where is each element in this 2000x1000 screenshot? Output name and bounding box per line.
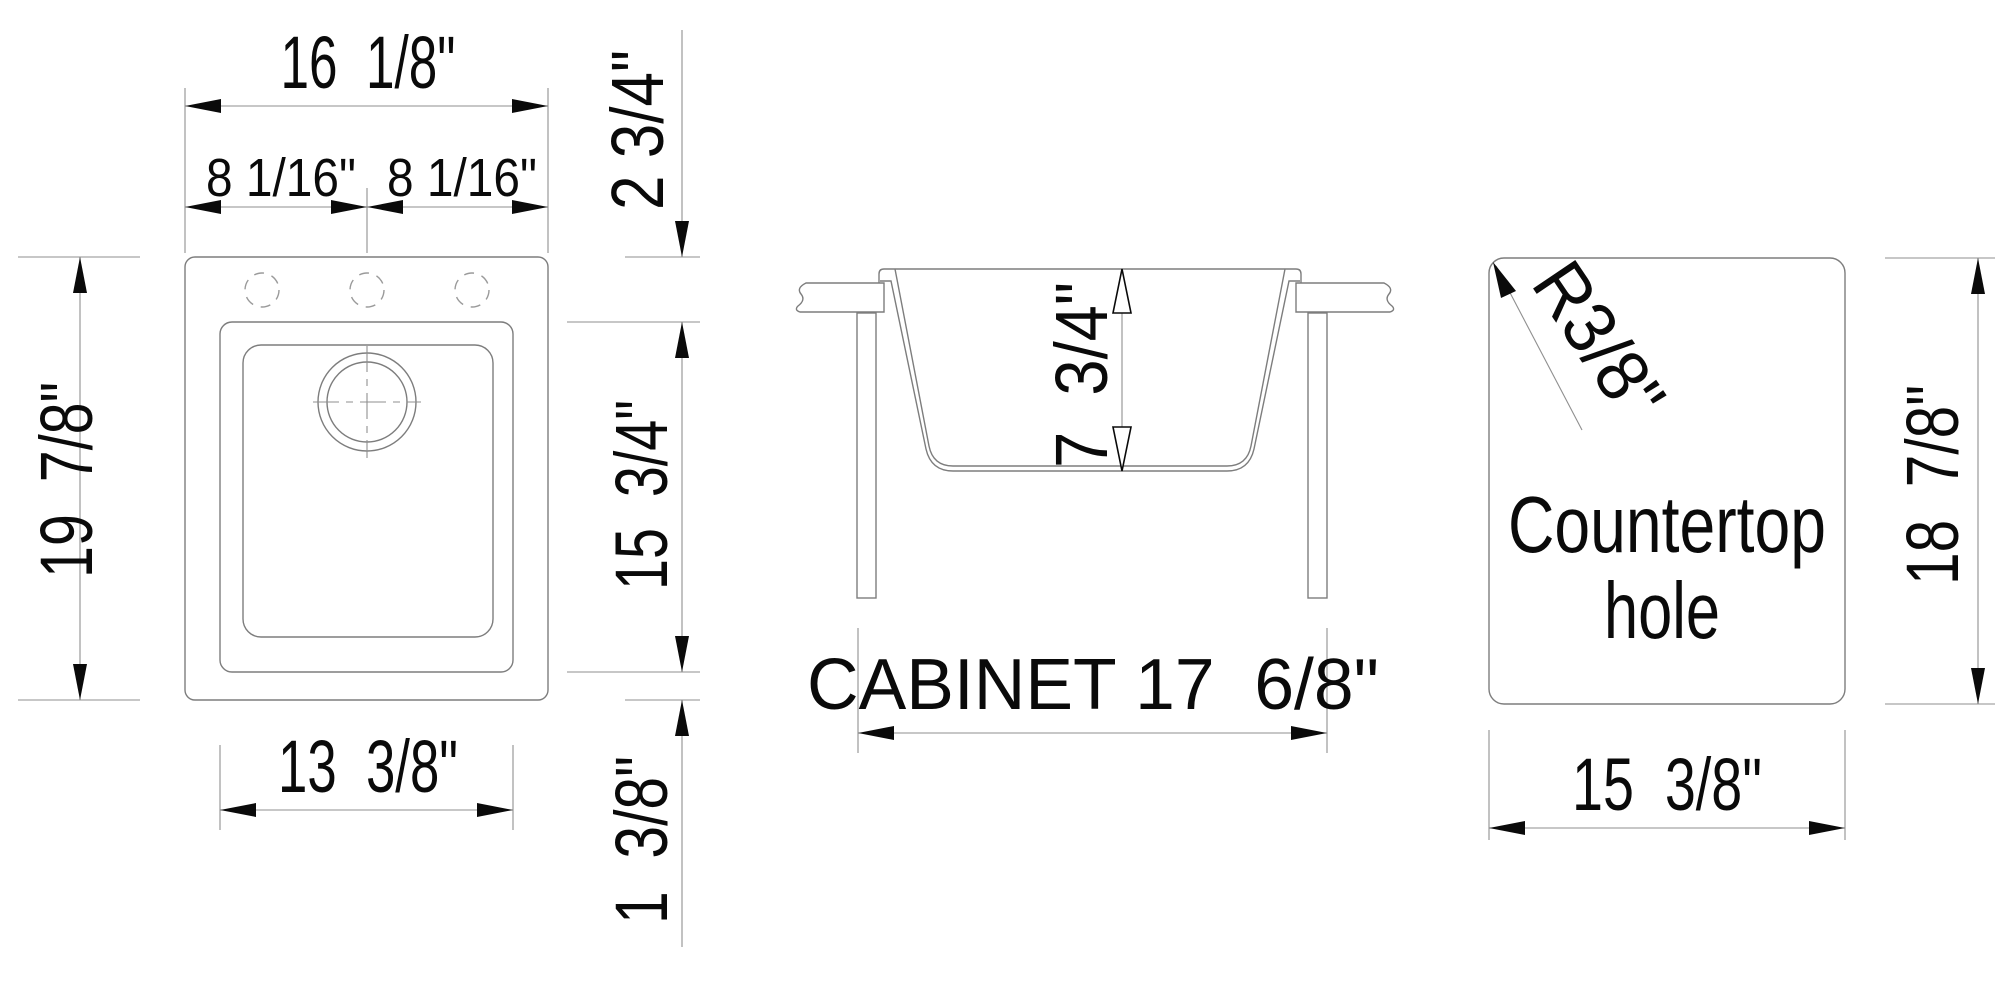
dim-half-width-left-label: 8 1/16" — [206, 148, 356, 208]
dim-corner-radius-label: R3/8" — [1517, 246, 1682, 435]
cabinet-right-panel — [1308, 313, 1327, 598]
dim-bowl-width: 13 3/8" — [220, 725, 513, 830]
arrow-down-icon — [675, 221, 689, 257]
arrow-right-icon — [1291, 726, 1327, 740]
arrow-down-icon — [1971, 668, 1985, 704]
arrow-up-icon — [1971, 258, 1985, 294]
countertop-hole-view: R3/8" Countertop hole 18 7/8" 15 3/8" — [1489, 246, 1995, 840]
dim-hole-width-label: 15 3/8" — [1572, 743, 1762, 826]
countertop-right-section — [1296, 283, 1394, 312]
arrow-left-icon — [185, 99, 221, 113]
dim-rim-offset-bottom-label: 1 3/8" — [600, 756, 683, 924]
dim-half-widths: 8 1/16" 8 1/16" — [185, 148, 548, 253]
arrow-right-icon — [477, 803, 513, 817]
dim-overall-depth: 19 7/8" — [18, 257, 140, 700]
faucet-hole-icon — [455, 273, 489, 307]
dim-hole-height-label: 18 7/8" — [1891, 385, 1974, 585]
hole-label-line2: hole — [1604, 566, 1720, 655]
dim-corner-radius: R3/8" — [1493, 246, 1682, 435]
dim-rim-offset-bottom: 1 3/8" — [600, 700, 700, 947]
dim-half-width-right-label: 8 1/16" — [387, 148, 537, 208]
sink-bowl-outline — [220, 322, 513, 672]
arrow-left-icon — [858, 726, 894, 740]
cabinet-left-panel — [857, 313, 876, 598]
dim-cabinet-label: CABINET 17 6/8" — [807, 645, 1379, 725]
arrow-right-icon — [512, 99, 548, 113]
arrow-down-icon — [675, 636, 689, 672]
sink-technical-drawing: 16 1/8" 8 1/16" 8 1/16" 19 7/8" — [0, 0, 2000, 1000]
top-view: 16 1/8" 8 1/16" 8 1/16" 19 7/8" — [18, 21, 700, 947]
arrow-up-left-icon — [1493, 262, 1516, 298]
dim-bowl-depth-label: 7 3/4" — [1040, 282, 1123, 468]
dim-bowl-length-label: 15 3/4" — [600, 400, 683, 590]
sink-rim-profile — [879, 269, 1301, 283]
dim-cabinet: CABINET 17 6/8" — [807, 628, 1379, 753]
dim-bowl-width-label: 13 3/8" — [278, 725, 458, 808]
arrow-up-icon — [73, 257, 87, 293]
arrow-left-icon — [1489, 821, 1525, 835]
sink-bowl-inner-outline — [243, 345, 493, 637]
hole-label-line1: Countertop — [1508, 480, 1826, 569]
dim-hole-height: 18 7/8" — [1885, 258, 1995, 704]
dim-overall-depth-label: 19 7/8" — [25, 382, 108, 578]
dim-rim-offset-top-label: 2 3/4" — [596, 50, 679, 210]
drawing-canvas: 16 1/8" 8 1/16" 8 1/16" 19 7/8" — [0, 0, 2000, 1000]
dim-bowl-depth: 7 3/4" — [1040, 269, 1131, 471]
dim-hole-width: 15 3/8" — [1489, 730, 1845, 840]
arrow-up-icon — [675, 700, 689, 736]
faucet-hole-icon — [350, 273, 384, 307]
dim-bowl-length: 15 3/4" — [567, 322, 700, 672]
arrow-down-icon — [73, 664, 87, 700]
dim-rim-offset-top: 2 3/4" — [596, 30, 700, 257]
arrow-left-icon — [220, 803, 256, 817]
dim-overall-width-label: 16 1/8" — [281, 21, 456, 104]
faucet-hole-icon — [245, 273, 279, 307]
section-view: 7 3/4" CABINET 17 6/8" — [796, 269, 1393, 753]
arrow-up-icon — [675, 322, 689, 358]
countertop-left-section — [796, 283, 884, 312]
arrow-right-icon — [1809, 821, 1845, 835]
